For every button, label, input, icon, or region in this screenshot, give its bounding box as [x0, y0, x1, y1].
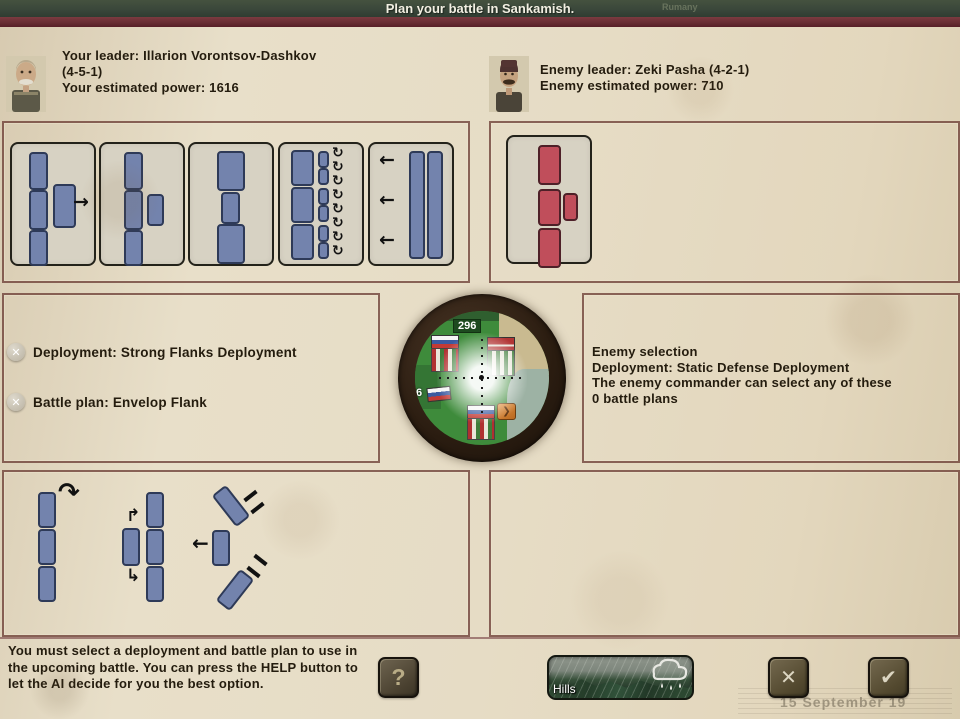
unit-bar [122, 528, 140, 566]
unit-bar [427, 151, 443, 259]
crosshair-center [479, 375, 484, 380]
minimap-event-icon: ❯ [497, 403, 516, 420]
dash-mark [253, 554, 267, 566]
deployment-option-5[interactable]: ← ← ← [368, 142, 454, 266]
page-title: Plan your battle in Sankamish. [0, 1, 960, 16]
enemy-deployment-option [506, 135, 592, 264]
elbow-down-arrow-icon: ↳ [126, 566, 140, 586]
terrain-name-label: Hills [553, 682, 576, 696]
enemy-unit-bar [538, 228, 561, 268]
player-leader-portrait [6, 56, 46, 112]
arrow-left-icon: ← [379, 229, 395, 251]
unit-bar [217, 224, 245, 264]
enemy-unit-bar [563, 193, 578, 221]
unit-bar [124, 230, 143, 266]
unit-bar [291, 187, 314, 223]
unit-bar [38, 529, 56, 565]
check-icon: ✔ [880, 665, 897, 690]
remove-deployment-button[interactable]: ✕ [7, 343, 25, 361]
remove-battle-plan-button[interactable]: ✕ [7, 393, 25, 411]
close-icon: ✕ [11, 396, 20, 409]
arrow-right-icon: → [73, 191, 89, 213]
deployment-option-1[interactable]: → [10, 142, 96, 266]
battle-plan-option-2[interactable]: ↱ ↳ [118, 478, 178, 608]
battle-location-minimap: 296 6 ❯ [398, 294, 566, 462]
confirm-button[interactable]: ✔ [868, 657, 909, 698]
unit-bar [212, 485, 251, 528]
enemy-selection-title: Enemy selection [592, 344, 892, 360]
unit-bar [124, 190, 143, 230]
dash-mark [243, 490, 257, 502]
top-title-bar: Plan your battle in Sankamish. Rumany [0, 0, 960, 17]
enemy-leader-portrait [489, 56, 529, 112]
minimap-side-label: 6 [416, 387, 422, 399]
arrow-left-icon: ← [192, 531, 209, 555]
unit-bar [409, 151, 425, 259]
battle-plan-option-3[interactable]: ← [190, 478, 275, 613]
maroon-stripe [0, 17, 960, 27]
unit-bar [29, 152, 48, 190]
unit-strength-bars [431, 348, 459, 372]
unit-bar [318, 225, 329, 242]
player-leader-line1: Your leader: Illarion Vorontsov-Dashkov [62, 48, 316, 64]
terrain-preview: Hills [547, 655, 694, 700]
enemy-battle-plans-line2: 0 battle plans [592, 391, 892, 407]
unit-bar [147, 194, 164, 226]
close-icon: ✕ [780, 665, 797, 690]
rain-cloud-icon [642, 658, 690, 692]
elbow-up-arrow-icon: ↱ [126, 506, 140, 526]
unit-bar [146, 529, 164, 565]
unit-bar [146, 492, 164, 528]
russian-unit-flag [426, 386, 451, 402]
unit-bar [318, 151, 329, 168]
cycle-arrow-icon: ↻ [332, 243, 344, 259]
background-map-label: Rumany [662, 2, 698, 12]
unit-bar [291, 224, 314, 260]
unit-bar [291, 150, 314, 186]
unit-bar [318, 205, 329, 222]
deployment-option-4[interactable]: ↻ ↻ ↻ ↻ ↻ ↻ ↻ ↻ [278, 142, 364, 266]
unit-bar [146, 566, 164, 602]
selected-deployment-label: Deployment: Strong Flanks Deployment [33, 345, 297, 360]
unit-bar [318, 168, 329, 185]
unit-bar [29, 190, 48, 230]
unit-bar [318, 242, 329, 259]
enemy-battle-plans-panel [489, 470, 960, 637]
enemy-unit-bar [538, 145, 561, 185]
selected-battle-plan-label: Battle plan: Envelop Flank [33, 395, 207, 410]
battle-plan-option-1[interactable]: ↷ [30, 478, 100, 608]
dash-mark [250, 502, 264, 514]
ottoman-unit-flag [487, 337, 515, 351]
deployment-option-3[interactable] [188, 142, 274, 266]
player-leader-line3: Your estimated power: 1616 [62, 80, 316, 96]
unit-bar [216, 569, 255, 612]
minimap-counter-badge: 296 [453, 319, 481, 333]
unit-bar [318, 188, 329, 205]
unit-bar [29, 230, 48, 266]
help-button[interactable]: ? [378, 657, 419, 698]
arrow-left-icon: ← [379, 189, 395, 211]
enemy-leader-line1: Enemy leader: Zeki Pasha (4-2-1) [540, 62, 749, 78]
unit-strength-bars [487, 350, 515, 376]
enemy-battle-plans-line1: The enemy commander can select any of th… [592, 375, 892, 391]
player-leader-line2: (4-5-1) [62, 64, 316, 80]
footer-divider [0, 637, 960, 639]
enemy-selection-info: Enemy selection Deployment: Static Defen… [592, 344, 892, 406]
deployment-option-2[interactable] [99, 142, 185, 266]
russian-unit-flag [431, 335, 459, 349]
unit-bar [217, 151, 245, 191]
minimap-view: 296 6 ❯ [415, 311, 549, 445]
player-leader-info: Your leader: Illarion Vorontsov-Dashkov … [62, 48, 316, 96]
help-icon: ? [391, 664, 405, 691]
enemy-unit-bar [538, 189, 561, 226]
your-selection-panel [2, 293, 380, 463]
footer-instruction: You must select a deployment and battle … [8, 643, 372, 693]
unit-bar [124, 152, 143, 190]
enemy-deployment-label: Deployment: Static Defense Deployment [592, 360, 892, 376]
arrow-left-icon: ← [379, 149, 395, 171]
enemy-leader-info: Enemy leader: Zeki Pasha (4-2-1) Enemy e… [540, 62, 749, 94]
cancel-button[interactable]: ✕ [768, 657, 809, 698]
enemy-leader-line2: Enemy estimated power: 710 [540, 78, 749, 94]
close-icon: ✕ [11, 346, 20, 359]
unit-bar [221, 192, 240, 224]
unit-bar [38, 492, 56, 528]
unit-bar [212, 530, 230, 566]
curve-arrow-icon: ↷ [58, 478, 80, 508]
unit-strength-bars [467, 418, 495, 440]
unit-bar [38, 566, 56, 602]
